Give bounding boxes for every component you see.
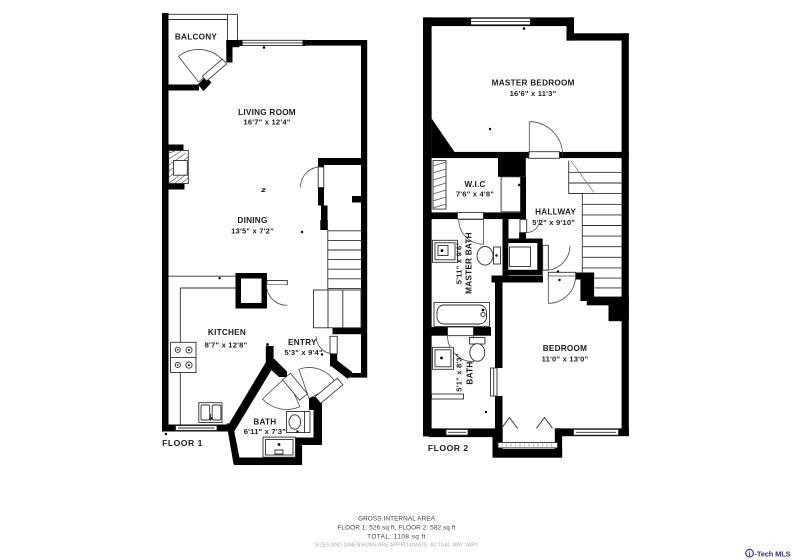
svg-text:7'6" x 4'8": 7'6" x 4'8": [456, 190, 495, 199]
svg-text:5'2" x 9'10": 5'2" x 9'10": [532, 218, 575, 227]
svg-text:MASTER BATH: MASTER BATH: [465, 232, 474, 294]
svg-text:8'7" x 12'8": 8'7" x 12'8": [205, 341, 248, 350]
svg-text:5'3" x 9'4": 5'3" x 9'4": [284, 348, 323, 357]
svg-text:BEDROOM: BEDROOM: [543, 344, 588, 353]
svg-text:W.I.C: W.I.C: [464, 180, 485, 189]
svg-text:11'0" x 13'0": 11'0" x 13'0": [542, 355, 589, 364]
svg-text:ENTRY: ENTRY: [288, 338, 317, 347]
svg-text:DINING: DINING: [237, 216, 267, 225]
svg-text:FLOOR 1: FLOOR 1: [162, 438, 203, 448]
svg-text:BATH: BATH: [253, 417, 276, 426]
svg-text:16'7" x 12'4": 16'7" x 12'4": [243, 118, 290, 127]
svg-text:6'11" x 7'3": 6'11" x 7'3": [244, 427, 287, 436]
svg-text:FLOOR 2: FLOOR 2: [428, 443, 469, 453]
svg-text:HALLWAY: HALLWAY: [535, 207, 576, 216]
svg-text:5'11" x 9'6": 5'11" x 9'6": [455, 242, 464, 285]
svg-text:i: i: [749, 551, 751, 558]
svg-text:LIVING ROOM: LIVING ROOM: [238, 108, 296, 117]
svg-text:-Tech MLS: -Tech MLS: [755, 549, 791, 558]
svg-text:KITCHEN: KITCHEN: [208, 328, 246, 337]
svg-text:16'6" x 11'3": 16'6" x 11'3": [510, 89, 557, 98]
svg-text:BATH: BATH: [466, 361, 475, 384]
svg-text:13'5" x 7'2": 13'5" x 7'2": [231, 227, 274, 236]
svg-text:MASTER BEDROOM: MASTER BEDROOM: [492, 79, 575, 88]
svg-text:5'1" x 8'3": 5'1" x 8'3": [455, 353, 464, 392]
svg-text:SIZES AND DIMENSIONS ARE APPRO: SIZES AND DIMENSIONS ARE APPROXIMATE, AC…: [315, 543, 480, 549]
svg-text:TOTAL: 1108 sq ft: TOTAL: 1108 sq ft: [367, 534, 426, 541]
svg-text:GROSS INTERNAL AREA: GROSS INTERNAL AREA: [358, 516, 436, 523]
svg-text:BALCONY: BALCONY: [175, 33, 218, 42]
svg-text:FLOOR 1: 526 sq ft, FLOOR 2: 5: FLOOR 1: 526 sq ft, FLOOR 2: 582 sq ft: [337, 525, 455, 532]
